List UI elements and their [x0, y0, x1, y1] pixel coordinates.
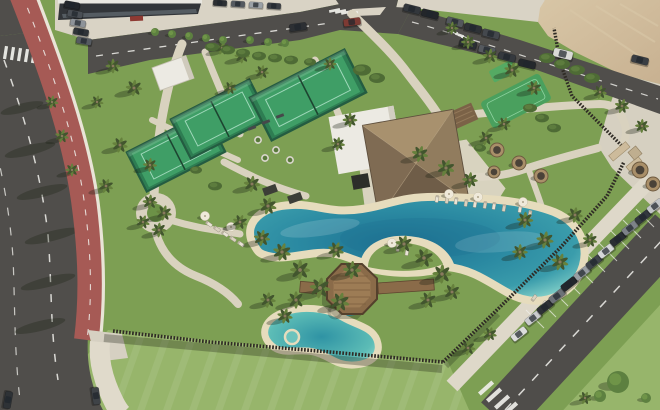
agave-planter [254, 136, 262, 144]
hedge-bush [474, 144, 486, 151]
agave-planter [272, 146, 280, 154]
hedge-bush [221, 46, 235, 55]
hedge-bush [554, 59, 570, 69]
hedge-bush [569, 65, 585, 75]
hedge-bush [268, 54, 282, 63]
hedge-bush [584, 73, 600, 83]
parked-car [248, 1, 264, 9]
hedge-bush [535, 114, 549, 123]
hedge-bush [353, 64, 371, 75]
hedge-bush [190, 166, 202, 173]
hedge-bush [205, 43, 219, 52]
aerial-scene-canvas [0, 0, 660, 410]
agave-planter [261, 154, 269, 162]
hedge-bush [547, 124, 561, 133]
parked-car [230, 0, 246, 8]
hedge-bush [252, 52, 266, 61]
hedge-bush [284, 56, 298, 65]
hedge-bush [523, 104, 537, 113]
hedge-bush [208, 182, 222, 191]
aerial-resort-photo [0, 0, 660, 410]
building-roof-edge [58, 0, 202, 4]
agave-planter [286, 156, 294, 164]
storefront-sign [130, 16, 143, 22]
hedge-bush [236, 49, 250, 58]
parked-car [266, 2, 282, 10]
hedge-bush [304, 58, 316, 65]
hedge-bush [369, 73, 385, 83]
buggy-bay [351, 173, 370, 190]
spa-circle [285, 330, 299, 344]
parked-car [212, 0, 228, 8]
hedge-bush [539, 53, 555, 63]
